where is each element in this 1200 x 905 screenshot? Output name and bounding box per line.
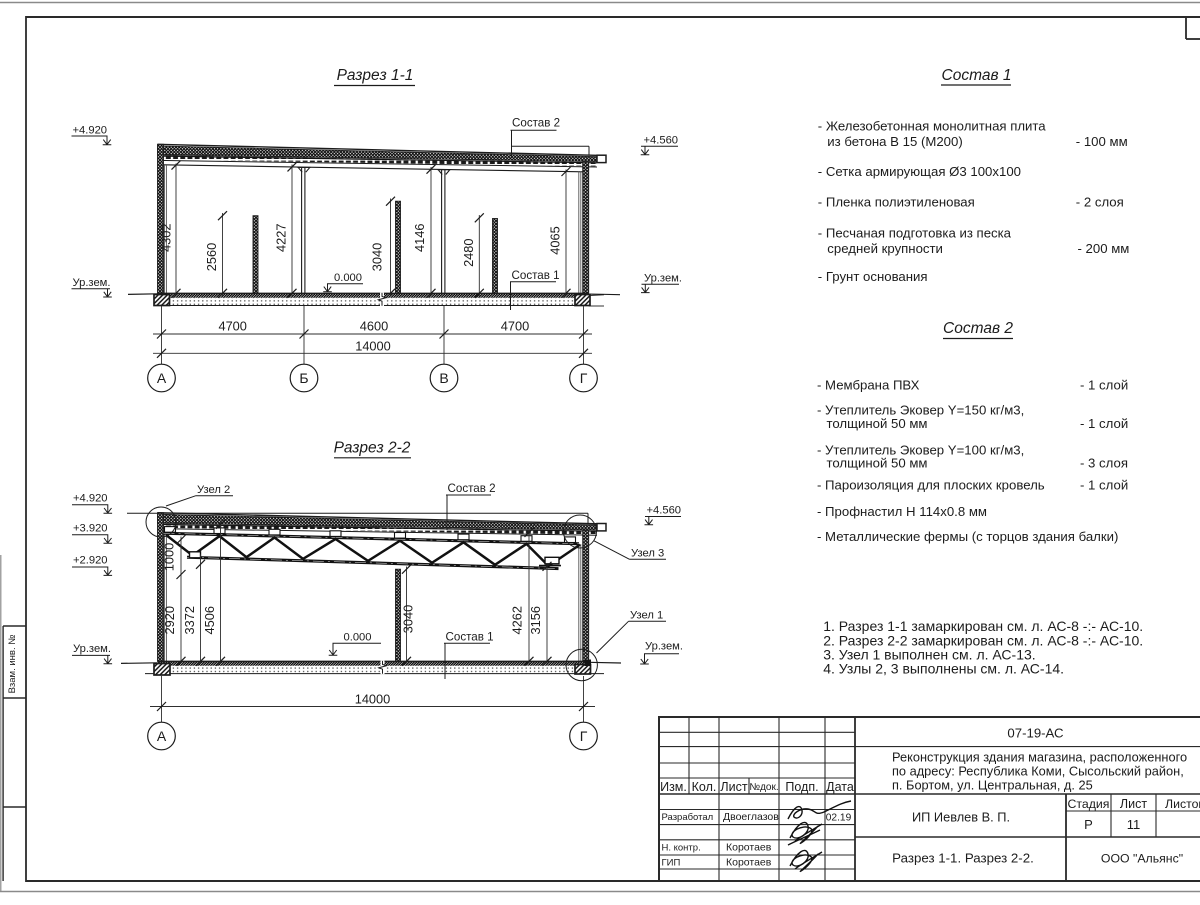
svg-text:4065: 4065 (548, 226, 563, 254)
svg-text:- 3 слоя: - 3 слоя (1080, 456, 1128, 471)
svg-text:Н. контр.: Н. контр. (662, 843, 701, 854)
svg-text:1000: 1000 (162, 543, 177, 571)
svg-text:толщиной 50 мм: толщиной 50 мм (827, 416, 928, 431)
svg-text:- 100 мм: - 100 мм (1076, 134, 1128, 149)
svg-text:Разработал: Разработал (662, 812, 714, 823)
svg-text:+2.920: +2.920 (73, 555, 108, 567)
svg-text:4700: 4700 (501, 319, 529, 334)
svg-text:Подп.: Подп. (785, 780, 818, 794)
svg-text:толщиной 50 мм: толщиной 50 мм (827, 456, 928, 471)
svg-text:А: А (157, 728, 167, 744)
svg-text:ГИП: ГИП (662, 858, 681, 869)
svg-text:Ур.зем.: Ур.зем. (73, 277, 111, 289)
svg-text:Ур.зем.: Ур.зем. (645, 640, 683, 652)
svg-text:А: А (157, 370, 167, 386)
svg-text:2920: 2920 (162, 606, 177, 634)
svg-text:Разрез 1-1. Разрез 2-2.: Разрез 1-1. Разрез 2-2. (892, 851, 1034, 866)
svg-text:- Пленка полиэтиленовая: - Пленка полиэтиленовая (818, 195, 975, 210)
svg-text:- Мембрана ПВХ: - Мембрана ПВХ (817, 378, 920, 393)
svg-text:+3.920: +3.920 (73, 522, 108, 534)
svg-text:Узел 2: Узел 2 (197, 484, 230, 496)
svg-text:2480: 2480 (461, 238, 476, 266)
svg-text:Г: Г (580, 728, 588, 744)
svg-text:Разрез 1-1: Разрез 1-1 (337, 67, 414, 84)
svg-text:- Грунт основания: - Грунт основания (818, 269, 928, 284)
svg-text:4302: 4302 (159, 223, 174, 251)
svg-text:из бетона В 15 (М200): из бетона В 15 (М200) (827, 134, 962, 149)
svg-text:3372: 3372 (182, 606, 197, 634)
svg-text:Стадия: Стадия (1068, 797, 1110, 811)
svg-text:4227: 4227 (273, 223, 288, 251)
svg-text:Состав 2: Состав 2 (448, 482, 496, 495)
svg-text:+4.560: +4.560 (647, 504, 682, 516)
svg-text:- Железобетонная монолитная п: - Железобетонная монолитная плита (818, 119, 1047, 134)
svg-text:Состав 2: Состав 2 (512, 117, 560, 130)
svg-text:ИП Иевлев В. П.: ИП Иевлев В. П. (912, 810, 1010, 825)
svg-text:4146: 4146 (412, 223, 427, 251)
svg-text:2560: 2560 (204, 243, 219, 271)
svg-text:ООО "Альянс": ООО "Альянс" (1101, 852, 1183, 866)
svg-text:Коротаев: Коротаев (726, 857, 772, 869)
svg-text:Реконструкция здания магазина,: Реконструкция здания магазина, расположе… (892, 750, 1187, 765)
svg-text:Состав 1: Состав 1 (512, 269, 560, 282)
svg-text:- 2 слоя: - 2 слоя (1076, 195, 1124, 210)
svg-text:3040: 3040 (401, 605, 416, 633)
svg-text:Б: Б (299, 370, 308, 386)
svg-text:3040: 3040 (370, 243, 385, 271)
svg-text:- Сетка армирующая Ø3 100х100: - Сетка армирующая Ø3 100х100 (818, 164, 1021, 179)
svg-text:Г: Г (580, 370, 588, 386)
svg-text:- Металлические фермы (с торцо: - Металлические фермы (с торцов здания б… (817, 529, 1118, 544)
svg-text:11: 11 (1127, 817, 1141, 832)
svg-text:02.19: 02.19 (826, 813, 852, 824)
svg-text:- Профнастил Н 114х0.8 мм: - Профнастил Н 114х0.8 мм (817, 504, 987, 519)
svg-text:Кол.: Кол. (692, 780, 717, 794)
svg-text:0.000: 0.000 (344, 631, 372, 643)
svg-text:№док.: №док. (749, 782, 778, 793)
svg-text:4262: 4262 (510, 606, 525, 634)
svg-text:0.000: 0.000 (334, 272, 362, 284)
svg-text:4700: 4700 (218, 319, 246, 334)
svg-text:- 1 слой: - 1 слой (1080, 378, 1128, 393)
svg-text:3156: 3156 (528, 606, 543, 634)
svg-text:Разрез 2-2: Разрез 2-2 (334, 440, 411, 457)
svg-text:Листов: Листов (1165, 797, 1200, 811)
svg-text:14000: 14000 (355, 692, 391, 707)
svg-text:Узел 1: Узел 1 (630, 610, 663, 622)
svg-text:- Пароизоляция для плоских кро: - Пароизоляция для плоских кровель (817, 477, 1045, 492)
svg-text:Лист: Лист (1120, 797, 1147, 811)
svg-text:Дата: Дата (826, 780, 854, 794)
svg-text:- 200 мм: - 200 мм (1078, 241, 1130, 256)
svg-text:Состав 1: Состав 1 (942, 67, 1012, 84)
svg-text:по адресу: Республика Коми, Сы: по адресу: Республика Коми, Сысольский р… (892, 763, 1184, 778)
svg-text:+4.920: +4.920 (73, 492, 108, 504)
svg-text:4506: 4506 (202, 606, 217, 634)
svg-text:средней крупности: средней крупности (827, 241, 943, 256)
svg-text:В: В (439, 370, 448, 386)
svg-text:Р: Р (1084, 817, 1093, 832)
svg-text:- Песчаная подготовка из песка: - Песчаная подготовка из песка (818, 225, 1012, 240)
svg-text:- 1 слой: - 1 слой (1080, 416, 1128, 431)
svg-text:Коротаев: Коротаев (726, 842, 772, 854)
svg-text:Состав 2: Состав 2 (943, 320, 1013, 337)
svg-text:Узел 3: Узел 3 (631, 548, 664, 560)
svg-text:Изм.: Изм. (660, 780, 687, 794)
svg-text:Двоеглазов: Двоеглазов (723, 811, 779, 823)
svg-text:Состав 1: Состав 1 (446, 630, 494, 643)
svg-text:Ур.зем.: Ур.зем. (73, 643, 111, 655)
svg-text:4. Узлы 2, 3 выполнены см. л.: 4. Узлы 2, 3 выполнены см. л. АС-14. (823, 660, 1064, 676)
svg-text:Взам. инв. №: Взам. инв. № (7, 635, 18, 694)
svg-text:Ур.зем.: Ур.зем. (644, 272, 682, 284)
svg-text:4600: 4600 (360, 319, 388, 334)
svg-text:14000: 14000 (355, 339, 391, 354)
svg-text:- 1 слой: - 1 слой (1080, 477, 1128, 492)
svg-text:п. Бортом, ул. Центральная, д.: п. Бортом, ул. Центральная, д. 25 (892, 777, 1093, 792)
svg-text:Лист: Лист (720, 780, 747, 794)
svg-text:+4.560: +4.560 (644, 134, 679, 146)
svg-text:07-19-АС: 07-19-АС (1007, 726, 1064, 741)
svg-text:+4.920: +4.920 (73, 124, 108, 136)
